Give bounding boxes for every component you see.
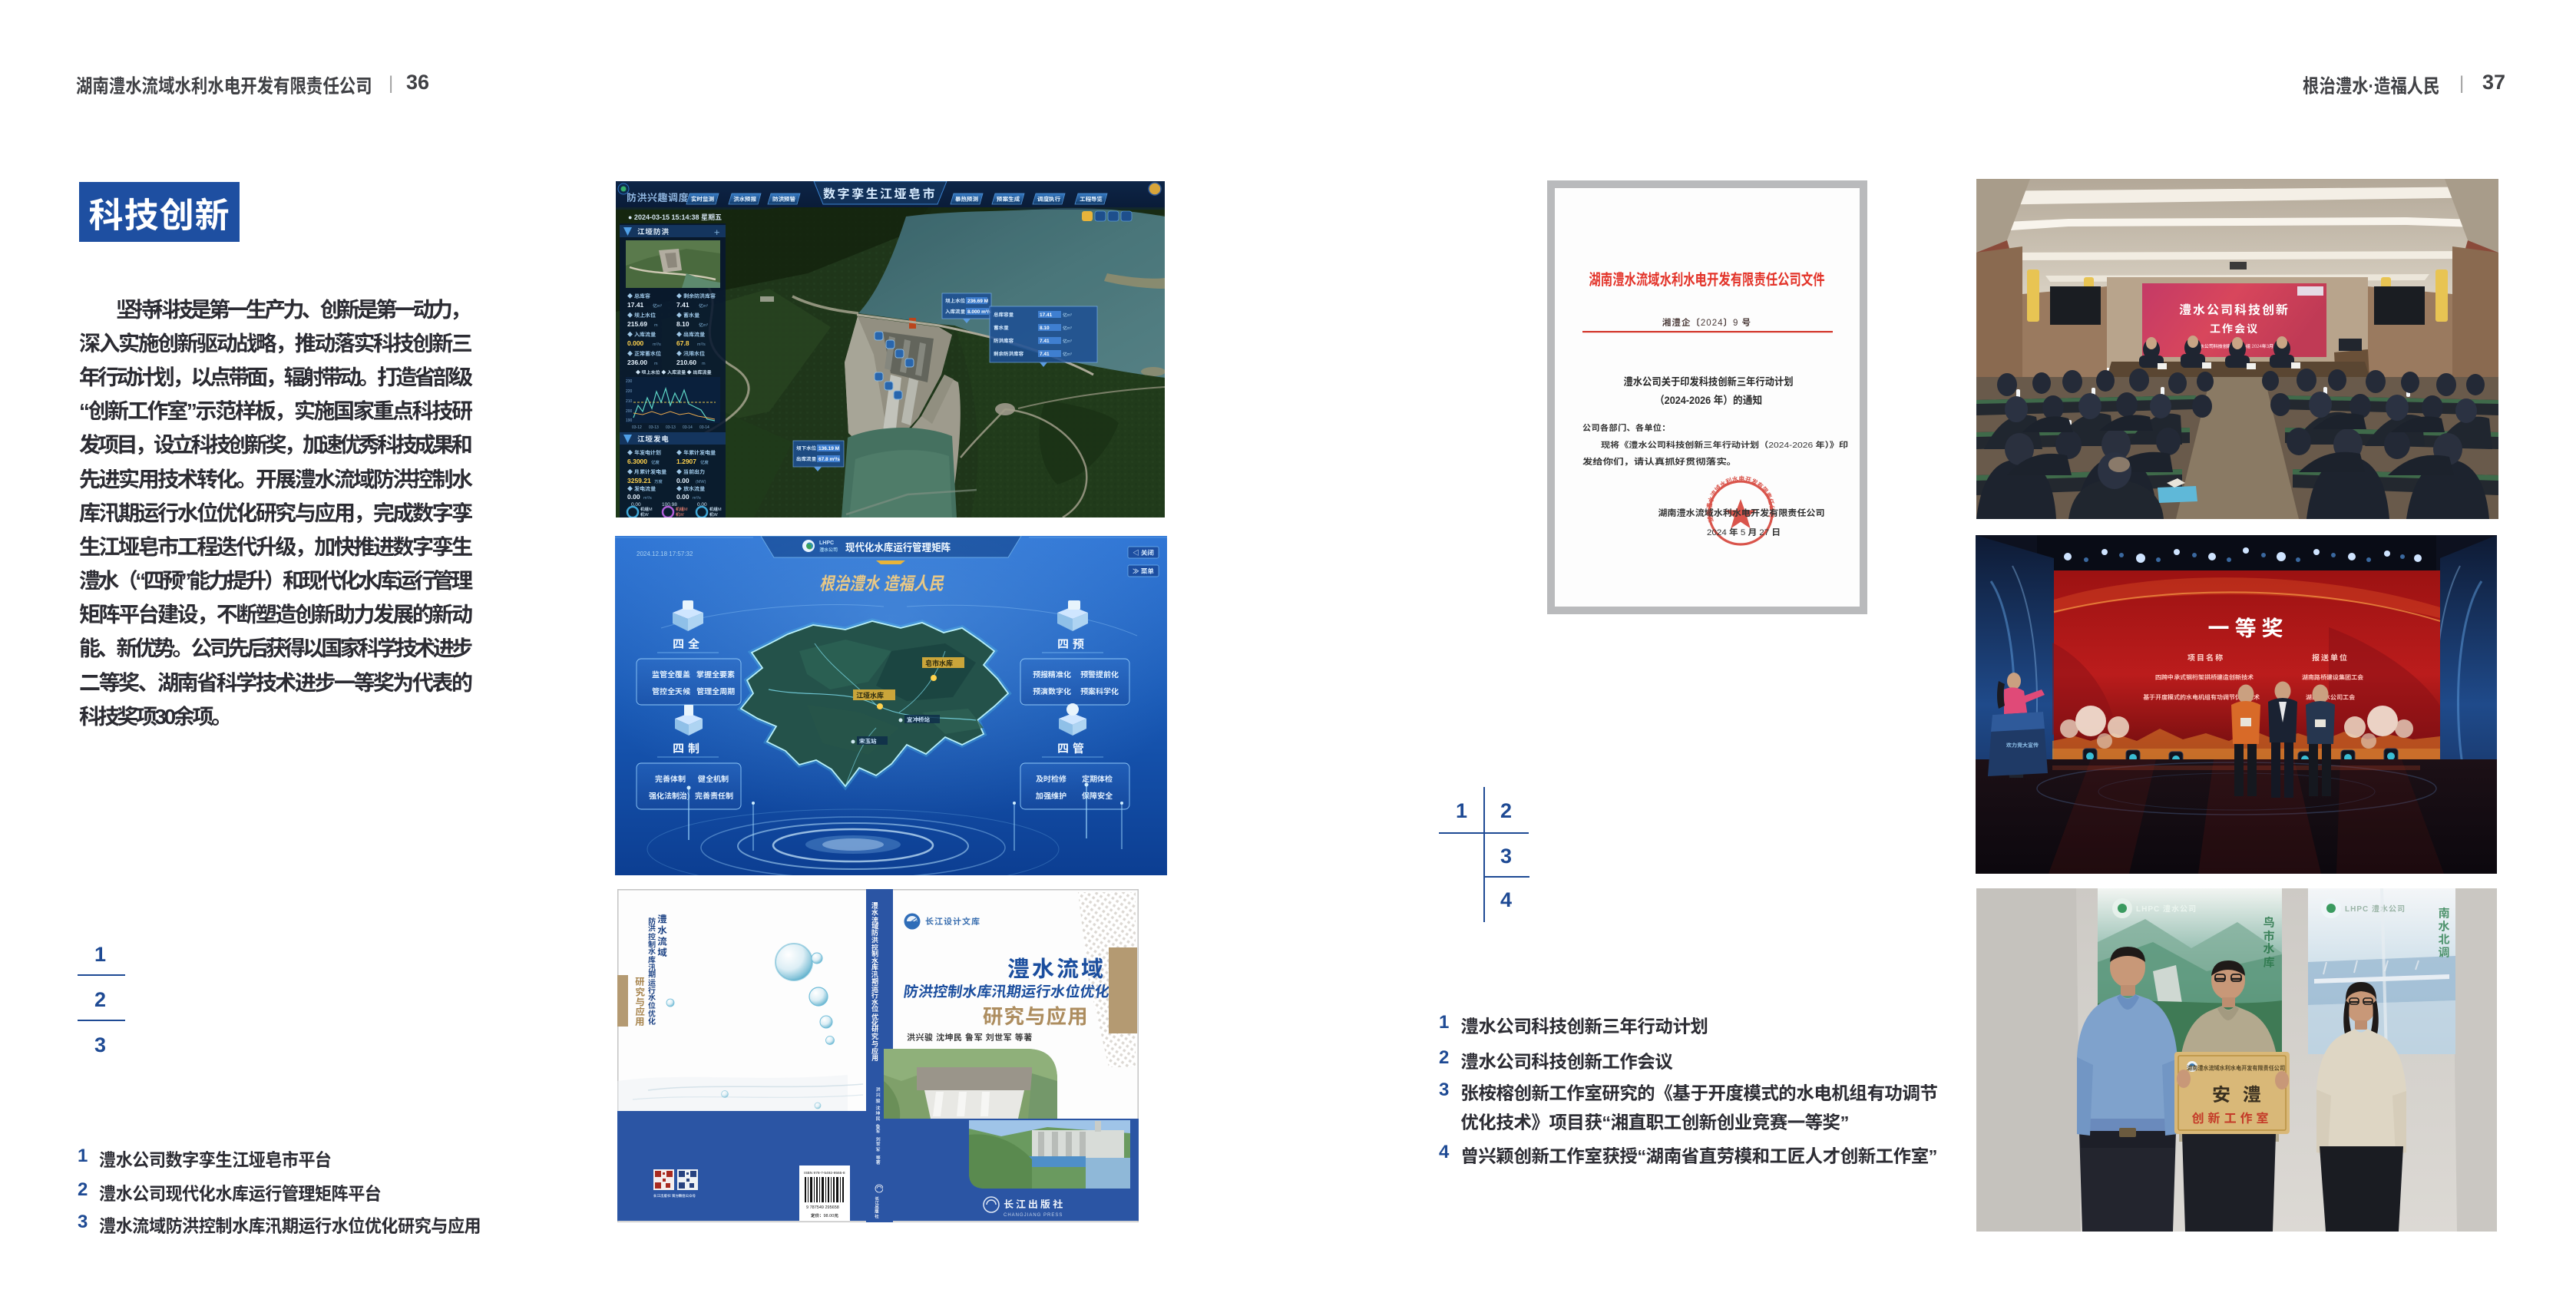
svg-text:LHPC: LHPC <box>819 541 834 546</box>
svg-text:67.8: 67.8 <box>676 339 689 347</box>
svg-text:2024.12.18 17:57:32: 2024.12.18 17:57:32 <box>637 551 693 557</box>
svg-text:加强维护: 加强维护 <box>1036 792 1066 801</box>
svg-text:210.60: 210.60 <box>676 359 696 366</box>
svg-text:南水北调: 南水北调 <box>2437 907 2450 959</box>
svg-text:ISBN 978-7-5492-9565-8: ISBN 978-7-5492-9565-8 <box>804 1171 845 1175</box>
svg-text:湖南澧水流域水利水电开发有限责任公司: 湖南澧水流域水利水电开发有限责任公司 <box>2187 1064 2285 1072</box>
svg-text:澧水流域防洪控制水库汛期运行水位优化研究与应用: 澧水流域防洪控制水库汛期运行水位优化研究与应用 <box>871 901 879 1062</box>
svg-text:7.41: 7.41 <box>676 301 689 309</box>
svg-text:澧水公司科技创新: 澧水公司科技创新 <box>2179 303 2290 317</box>
svg-text:澧水（“四预”能力提升）和现代化水库运行管理: 澧水（“四预”能力提升）和现代化水库运行管理 <box>79 569 473 593</box>
svg-text:◆ 总库容: ◆ 总库容 <box>627 293 650 299</box>
svg-text:剩余防洪库容: 剩余防洪库容 <box>994 351 1024 357</box>
svg-text:机组M: 机组M <box>676 507 688 512</box>
svg-text:m³/s: m³/s <box>693 496 701 501</box>
svg-text:监管全覆盖: 监管全覆盖 <box>652 670 690 679</box>
svg-text:报送单位: 报送单位 <box>2312 653 2349 663</box>
svg-text:总库容量: 总库容量 <box>994 312 1014 318</box>
svg-text:江垭水库: 江垭水库 <box>856 692 884 699</box>
svg-text:先进实用技术转化。开展澧水流域防洪控制水: 先进实用技术转化。开展澧水流域防洪控制水 <box>79 468 473 491</box>
svg-text:机W: 机W <box>709 512 719 517</box>
svg-text:m: m <box>702 362 706 366</box>
svg-text:预演数字化: 预演数字化 <box>1033 687 1071 696</box>
svg-text:0.00: 0.00 <box>676 477 689 484</box>
svg-text:防洪控制水库汛期运行水位优化: 防洪控制水库汛期运行水位优化 <box>902 984 1110 1000</box>
svg-text:136.19 M: 136.19 M <box>818 446 839 451</box>
svg-text:定期体检: 定期体检 <box>1082 775 1113 784</box>
svg-text:皂市水库: 皂市水库 <box>925 660 953 667</box>
svg-text:03-13: 03-13 <box>666 425 676 430</box>
svg-text:◆ 汛限水位: ◆ 汛限水位 <box>676 350 705 357</box>
svg-text:四预: 四预 <box>1057 638 1088 651</box>
svg-text:四制: 四制 <box>673 742 703 755</box>
svg-text:亿m³: 亿m³ <box>699 303 708 309</box>
svg-text:机W: 机W <box>640 512 650 517</box>
svg-text:长江出版社 官方微信公众号: 长江出版社 官方微信公众号 <box>653 1193 696 1198</box>
svg-text:防洪预警: 防洪预警 <box>772 196 795 203</box>
svg-text:0.00: 0.00 <box>676 493 689 501</box>
svg-text:亿m³: 亿m³ <box>1063 339 1072 344</box>
svg-text:洪水预报: 洪水预报 <box>733 196 756 203</box>
svg-text:LHPC 澧水公司: LHPC 澧水公司 <box>2345 904 2406 914</box>
svg-text:机W: 机W <box>676 512 685 517</box>
svg-text:“创新工作室”示范样板，实施国家重点科技研: “创新工作室”示范样板，实施国家重点科技研 <box>79 399 473 423</box>
svg-text:掌握全要素: 掌握全要素 <box>696 670 735 679</box>
svg-text:◆ 月累计发电量: ◆ 月累计发电量 <box>627 468 667 475</box>
svg-text:◆ 蓄水量: ◆ 蓄水量 <box>676 312 700 319</box>
svg-text:宋玉站: 宋玉站 <box>859 738 877 745</box>
svg-text:236.00: 236.00 <box>627 359 647 366</box>
svg-text:二等奖、湖南省科学技术进步一等奖为代表的: 二等奖、湖南省科学技术进步一等奖为代表的 <box>79 671 473 695</box>
svg-text:创新工作室: 创新工作室 <box>2191 1111 2272 1126</box>
svg-text:工程导览: 工程导览 <box>1080 196 1103 203</box>
svg-text:生江垭皂市工程迭代升级，加快推进数字孪生: 生江垭皂市工程迭代升级，加快推进数字孪生 <box>79 535 473 559</box>
svg-text:◆ 剩余防洪库容: ◆ 剩余防洪库容 <box>676 293 716 299</box>
svg-text:m³/s: m³/s <box>653 342 661 347</box>
svg-text:坝下水位: 坝下水位 <box>795 445 817 451</box>
svg-text:◆ 年发电计划: ◆ 年发电计划 <box>627 449 661 456</box>
svg-text:长江出版社: 长江出版社 <box>1004 1199 1065 1210</box>
svg-text:完善责任制: 完善责任制 <box>695 792 733 801</box>
svg-text:2024 年 5 月 27 日: 2024 年 5 月 27 日 <box>1707 527 1781 537</box>
svg-text:出库流量: 出库流量 <box>796 456 817 462</box>
svg-text:亿m³: 亿m³ <box>1063 326 1072 331</box>
svg-text:万度: 万度 <box>653 479 663 484</box>
svg-text:CHANGJIANG PRESS: CHANGJIANG PRESS <box>1004 1213 1063 1218</box>
svg-text:预案生成: 预案生成 <box>997 196 1020 203</box>
svg-text:安: 安 <box>2212 1085 2230 1106</box>
svg-text:03-14: 03-14 <box>683 425 693 430</box>
svg-text:0.00: 0.00 <box>627 493 640 501</box>
svg-text:管理全周期: 管理全周期 <box>696 687 735 696</box>
svg-text:1.2907: 1.2907 <box>676 458 696 465</box>
svg-text:m: m <box>654 362 658 366</box>
svg-text:湖南澧水流域水利水电开发有限责任公司: 湖南澧水流域水利水电开发有限责任公司 <box>1658 508 1825 518</box>
svg-text:◆ 发电流量: ◆ 发电流量 <box>627 485 656 492</box>
svg-text:◆ 出库流量: ◆ 出库流量 <box>676 331 706 338</box>
svg-text:17.41: 17.41 <box>627 301 644 309</box>
svg-text:工作会议: 工作会议 <box>2210 322 2259 335</box>
svg-text:数字孪生江垭皂市: 数字孪生江垭皂市 <box>823 187 937 201</box>
svg-text:215.69: 215.69 <box>627 320 647 328</box>
svg-text:67.8 m³/s: 67.8 m³/s <box>818 457 840 462</box>
svg-text:预警提前化: 预警提前化 <box>1080 670 1119 679</box>
svg-text:一等奖: 一等奖 <box>2207 617 2288 640</box>
svg-text:湖南路桥建设集团工会: 湖南路桥建设集团工会 <box>2302 674 2364 681</box>
svg-text:科技奖项30余项。: 科技奖项30余项。 <box>79 705 233 729</box>
svg-text:四管: 四管 <box>1057 742 1088 755</box>
svg-text:江垭发电: 江垭发电 <box>637 435 670 444</box>
svg-text:入库流量: 入库流量 <box>945 309 966 315</box>
svg-text:8.10: 8.10 <box>1040 326 1050 331</box>
svg-text:◆ 放水流量: ◆ 放水流量 <box>676 485 706 492</box>
svg-text:防洪兴趣调度: 防洪兴趣调度 <box>627 192 689 203</box>
svg-text:m³/s: m³/s <box>643 496 652 501</box>
svg-text:9 787549 295658: 9 787549 295658 <box>806 1205 839 1210</box>
svg-text:发给你们，请认真抓好贯彻落实。: 发给你们，请认真抓好贯彻落实。 <box>1582 457 1737 467</box>
svg-text:（2024-2026 年）的通知: （2024-2026 年）的通知 <box>1655 394 1762 406</box>
svg-text:6.3000: 6.3000 <box>627 458 647 465</box>
svg-text:现将《澧水公司科技创新三年行动计划（2024-2026 年）: 现将《澧水公司科技创新三年行动计划（2024-2026 年）》印 <box>1601 440 1848 450</box>
svg-text:230: 230 <box>626 379 633 384</box>
svg-text:矩阵平台建设，不断塑造创新助力发展的新动: 矩阵平台建设，不断塑造创新助力发展的新动 <box>79 603 473 627</box>
svg-text:强化法制治): 强化法制治) <box>649 792 689 801</box>
svg-text:公司各部门、各单位：: 公司各部门、各单位： <box>1582 423 1671 433</box>
svg-text:7.41: 7.41 <box>1040 352 1050 357</box>
svg-text:03-12: 03-12 <box>632 425 642 430</box>
svg-text:澧水公司: 澧水公司 <box>819 547 838 553</box>
svg-text:◆ 年累计发电量: ◆ 年累计发电量 <box>676 449 716 456</box>
svg-text:LHPC 澧水公司: LHPC 澧水公司 <box>2136 904 2197 914</box>
svg-text:实时监测: 实时监测 <box>691 196 714 203</box>
svg-text:236.69 M: 236.69 M <box>967 299 988 304</box>
svg-text:江垭防洪: 江垭防洪 <box>637 227 670 236</box>
svg-text:欢力竞大宣传: 欢力竞大宣传 <box>2006 742 2039 749</box>
svg-text:根治澧水 造福人民: 根治澧水 造福人民 <box>819 574 944 593</box>
svg-text:190: 190 <box>626 418 633 423</box>
svg-text:m: m <box>654 323 658 328</box>
svg-text:8.000 m³/s: 8.000 m³/s <box>967 309 992 315</box>
svg-text:7.41: 7.41 <box>1040 339 1050 344</box>
svg-text:研究与应用: 研究与应用 <box>983 1005 1089 1028</box>
svg-text:管控全天候: 管控全天候 <box>652 687 690 696</box>
svg-text:深入实施创新驱动战略，推动落实科技创新三: 深入实施创新驱动战略，推动落实科技创新三 <box>79 332 473 355</box>
svg-text:亿m³: 亿m³ <box>699 322 708 328</box>
svg-text:◆ 入库流量: ◆ 入库流量 <box>627 331 656 338</box>
svg-text:年行动计划，以点带面，辐射带动。打造省部级: 年行动计划，以点带面，辐射带动。打造省部级 <box>79 365 473 389</box>
svg-text:澧水流域: 澧水流域 <box>656 914 666 958</box>
svg-text:洪兴骏 沈坤民 鲁军 刘世军 等著: 洪兴骏 沈坤民 鲁军 刘世军 等著 <box>907 1033 1033 1043</box>
svg-text:亿m³: 亿m³ <box>653 303 662 309</box>
svg-text:鸟市水库: 鸟市水库 <box>2262 916 2275 968</box>
svg-text:发项目，设立科技创新奖，加速优秀科技成果和: 发项目，设立科技创新奖，加速优秀科技成果和 <box>79 433 473 457</box>
svg-text:亿度: 亿度 <box>651 460 660 465</box>
svg-text:机组M: 机组M <box>709 507 722 512</box>
svg-text:长江设计文库: 长江设计文库 <box>925 917 980 927</box>
svg-text:坚持科技是第一生产力、创新是第一动力，: 坚持科技是第一生产力、创新是第一动力， <box>116 298 471 322</box>
svg-text:03-13: 03-13 <box>649 425 659 430</box>
svg-text:澧: 澧 <box>2243 1085 2261 1106</box>
svg-text:8.10: 8.10 <box>676 320 689 328</box>
svg-text:亿m³: 亿m³ <box>1063 312 1072 318</box>
svg-text:完善体制: 完善体制 <box>655 775 686 784</box>
svg-text:湘澧企〔2024〕9 号: 湘澧企〔2024〕9 号 <box>1662 318 1751 328</box>
svg-text:03-14: 03-14 <box>699 425 709 430</box>
svg-text:m³/s: m³/s <box>697 342 706 347</box>
svg-text:能、新优势。公司先后获得以国家科学技术进步: 能、新优势。公司先后获得以国家科学技术进步 <box>79 636 473 660</box>
svg-text:四全: 四全 <box>673 637 703 651</box>
svg-text:≫ 菜单: ≫ 菜单 <box>1133 567 1154 575</box>
svg-text:亿度: 亿度 <box>700 460 709 465</box>
svg-text:研究与应用: 研究与应用 <box>633 977 644 1027</box>
svg-text:四跨中承式钢桁架拱桥建造创新技术: 四跨中承式钢桁架拱桥建造创新技术 <box>2155 673 2254 681</box>
svg-text:健全机制: 健全机制 <box>698 775 729 784</box>
svg-text:定价：98.00元: 定价：98.00元 <box>811 1212 838 1218</box>
svg-text:210: 210 <box>626 399 633 404</box>
svg-text:澧水公司关于印发科技创新三年行动计划: 澧水公司关于印发科技创新三年行动计划 <box>1624 375 1794 388</box>
svg-text:◆ 坝上水位: ◆ 坝上水位 <box>627 312 656 319</box>
svg-text:调度执行: 调度执行 <box>1037 196 1060 203</box>
svg-text:及时检修: 及时检修 <box>1036 775 1066 784</box>
svg-text:防洪库容: 防洪库容 <box>994 338 1014 344</box>
svg-text:宜冲桥站: 宜冲桥站 <box>907 716 930 723</box>
svg-text:◆ 坝上水位 ◆ 入库流量 ◆ 出库流量: ◆ 坝上水位 ◆ 入库流量 ◆ 出库流量 <box>636 369 712 375</box>
svg-text:＋: ＋ <box>713 229 720 236</box>
svg-text:预报精准化: 预报精准化 <box>1033 670 1071 679</box>
svg-text:0.000: 0.000 <box>627 339 644 347</box>
svg-text:◆ 正常蓄水位: ◆ 正常蓄水位 <box>627 350 661 357</box>
svg-text:蓄水量: 蓄水量 <box>994 325 1009 331</box>
svg-text:预案科学化: 预案科学化 <box>1080 687 1119 696</box>
svg-text:220: 220 <box>626 389 633 394</box>
svg-text:3259.21: 3259.21 <box>627 477 651 484</box>
svg-text:库汛期运行水位优化研究与应用，完成数字孪: 库汛期运行水位优化研究与应用，完成数字孪 <box>79 501 473 525</box>
svg-text:17.41: 17.41 <box>1040 312 1053 318</box>
svg-text:项目名称: 项目名称 <box>2187 653 2224 663</box>
svg-text:● 2024-03-15 15:14:38 星期五: ● 2024-03-15 15:14:38 星期五 <box>628 213 722 221</box>
svg-text:200: 200 <box>626 409 633 414</box>
svg-text:◆ 当前出力: ◆ 当前出力 <box>676 468 705 475</box>
svg-text:澧水流域: 澧水流域 <box>1007 957 1106 982</box>
svg-text:坝上水位: 坝上水位 <box>944 298 966 304</box>
svg-text:暴热预测: 暴热预测 <box>955 196 978 203</box>
svg-text:◁ 关闭: ◁ 关闭 <box>1133 549 1154 557</box>
svg-text:机组M: 机组M <box>640 507 653 512</box>
svg-text:湖南澧水流域水利水电开发有限责任公司文件: 湖南澧水流域水利水电开发有限责任公司文件 <box>1589 271 1825 289</box>
svg-text:现代化水库运行管理矩阵: 现代化水库运行管理矩阵 <box>845 541 951 554</box>
svg-text:亿m³: 亿m³ <box>1063 352 1072 357</box>
svg-text:(MW): (MW) <box>696 480 706 484</box>
